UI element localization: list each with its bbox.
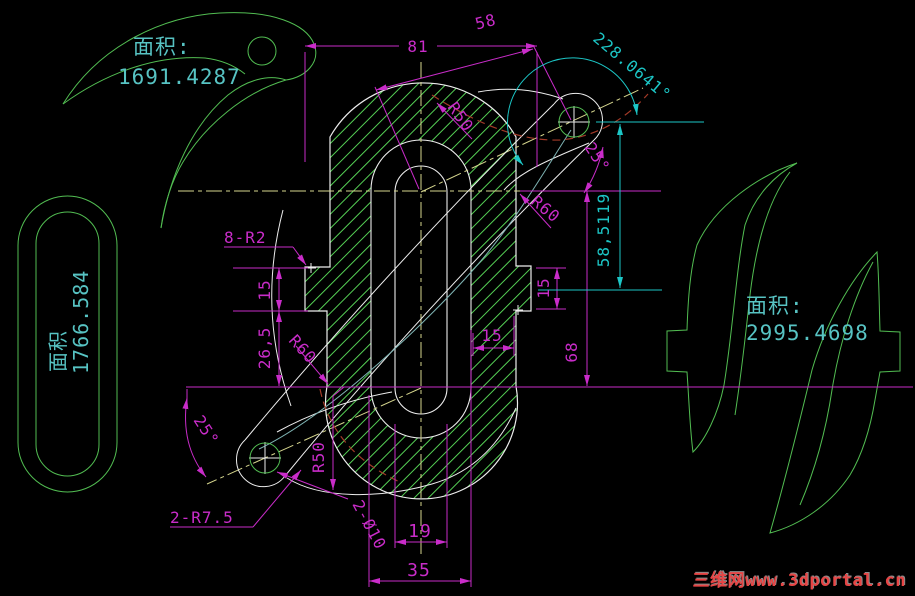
bottom-boss-arc [237,440,285,487]
area-value-claw: 1691.4287 [118,65,241,89]
watermark-text: 三维网www.3dportal.cn [692,570,906,591]
dim-58-text: 58 [473,10,498,34]
main-part [305,83,531,499]
area-label-claw: 面积: [133,35,191,59]
big-end-left-arc [272,210,291,406]
section-hatch [305,83,531,499]
dim58-line [376,49,533,90]
area-annotations: 面积: 1691.4287 面积 1766.584 面积: 2995.4698 [46,35,869,374]
dim-15-right-h-text: 15 [481,326,502,345]
claw-sweep-curve [161,80,286,228]
area-label-slot: 面积 [46,330,70,372]
area-value-slot: 1766.584 [69,270,93,374]
watermark: 三维网www.3dportal.cn 三维网www.3dportal.cn [692,569,907,591]
claw-hole [248,37,276,65]
dim-265-text: 26,5 [255,327,274,370]
dim228-arc [507,58,637,165]
top-arm-blend-lower [504,143,589,190]
top-hole-cross [558,106,590,138]
dim-r60-top-text: R60 [527,192,564,227]
area-label-blades: 面积: [746,294,804,318]
area-value-blades: 2995.4698 [746,321,869,345]
dim-8r2-text: 8-R2 [224,228,267,247]
dim-r50-bottom-text: R50 [309,441,328,473]
dim-15-left-text: 15 [255,279,274,300]
dim-68-text: 68 [562,341,581,362]
blade-shapes [667,163,900,533]
blade-right-inner [800,262,873,505]
dim-15-right-v-text: 15 [534,277,553,298]
dim-585119-text: 58,5119 [594,193,613,267]
cad-canvas[interactable]: 81 58 228.0641° 25° R50 R60 58,5119 8-R2… [0,0,915,596]
bottom-hole-cross [249,442,281,474]
dim-35-text: 35 [407,560,431,581]
dim-25-bottom-text: 25° [190,412,223,449]
dim-81-text: 81 [407,37,428,56]
dim8R2-leader [293,247,306,265]
dim-r60-bottom-text: R60 [285,331,320,367]
dim-2o10-text: 2-Ø10 [348,497,390,553]
cad-viewport: 81 58 228.0641° 25° R50 R60 58,5119 8-R2… [0,0,915,596]
claw-tail-curve [161,78,286,228]
top-arm-blend-upper [478,89,563,99]
dim-19-text: 19 [408,521,432,542]
dim-2r75-text: 2-R7.5 [170,508,234,527]
dim58-ext-right [533,45,571,120]
